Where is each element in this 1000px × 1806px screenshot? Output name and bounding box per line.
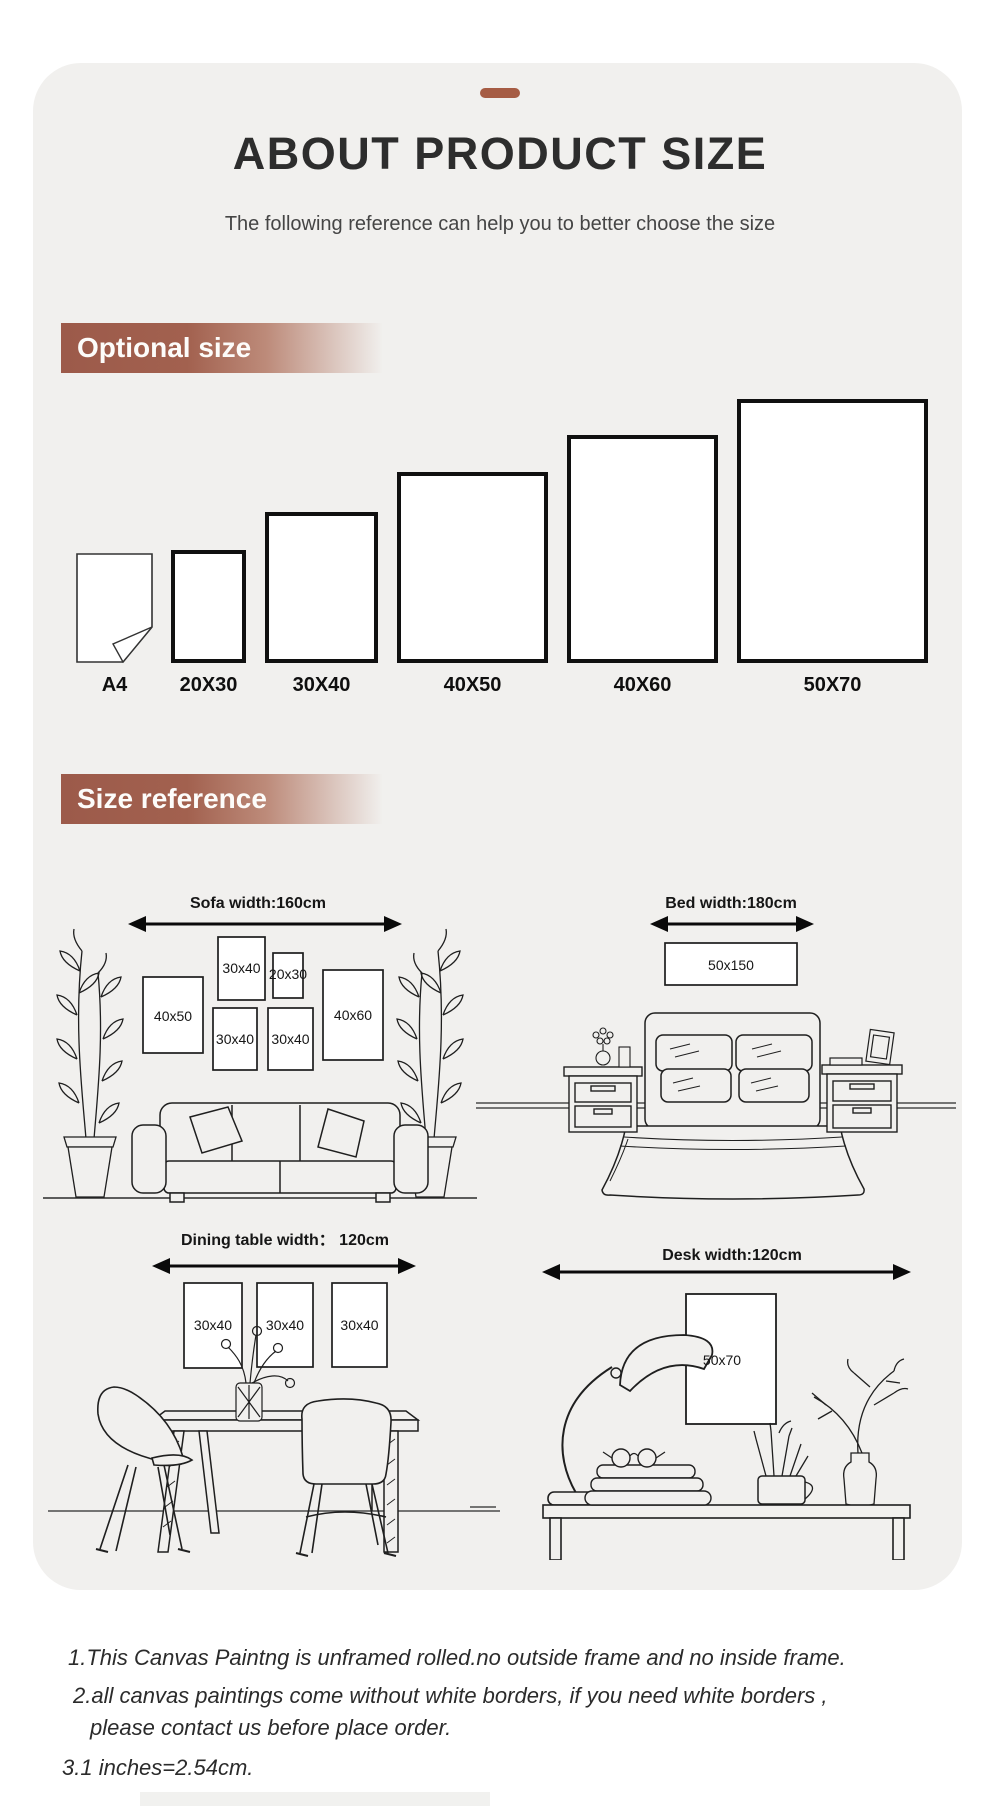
bed-illustration	[602, 1013, 864, 1199]
frame-label: 40x50	[154, 1008, 192, 1024]
sofa-scene-title: Sofa width:160cm	[190, 895, 326, 912]
product-size-infographic: ABOUT PRODUCT SIZE The following referen…	[0, 0, 1000, 1806]
desk-scene-title: Desk width:120cm	[662, 1247, 802, 1264]
frame-label: 40x60	[334, 1007, 372, 1023]
frame-label: 30x40	[222, 960, 260, 976]
vase-branches-illustration	[812, 1359, 908, 1506]
photo-frame-decor	[830, 1029, 894, 1065]
size-box-40x50	[397, 472, 548, 663]
desk-width-arrow	[542, 1264, 911, 1280]
size-box-40x60	[567, 435, 718, 663]
sofa-wall-frames	[143, 937, 383, 1070]
note-2-line1: 2.all canvas paintings come without whit…	[73, 1683, 828, 1709]
section-header-size-reference: Size reference	[61, 774, 393, 824]
size-label-50x70: 50X70	[737, 674, 928, 697]
accent-dash	[480, 88, 520, 98]
size-box-20x30	[171, 550, 246, 663]
note-3: 3.1 inches=2.54cm.	[62, 1755, 253, 1781]
bed-width-arrow	[650, 916, 814, 932]
page-subtitle: The following reference can help you to …	[0, 213, 1000, 236]
nightstand-right	[822, 1065, 902, 1132]
frame-label: 30x40	[194, 1317, 232, 1333]
size-label-30x40: 30X40	[265, 674, 378, 697]
dining-scene: Dining table width： 120cm 30x40 30x40 30…	[40, 1215, 510, 1560]
frame-label: 30x40	[271, 1031, 309, 1047]
nightstand-left	[564, 1067, 642, 1132]
note-2-line2: please contact us before place order.	[90, 1715, 451, 1741]
sofa-scene: Sofa width:160cm	[40, 885, 480, 1215]
frame-label: 50x150	[708, 957, 754, 973]
note-1: 1.This Canvas Paintng is unframed rolled…	[68, 1645, 846, 1671]
size-label-20x30: 20X30	[171, 674, 246, 697]
pencil-mug-illustration	[754, 1421, 813, 1504]
page-title: ABOUT PRODUCT SIZE	[0, 128, 1000, 180]
size-label-a4: A4	[76, 674, 153, 697]
dining-scene-title: Dining table width： 120cm	[181, 1232, 389, 1249]
desk-scene: Desk width:120cm 50x70	[470, 1215, 962, 1560]
frame-label: 30x40	[216, 1031, 254, 1047]
frame-label: 50x70	[703, 1352, 741, 1368]
frame-label: 30x40	[266, 1317, 304, 1333]
footer-shadow	[140, 1792, 490, 1806]
size-box-50x70	[737, 399, 928, 663]
chair-right-illustration	[296, 1399, 396, 1556]
desk-illustration	[543, 1505, 910, 1560]
sofa-illustration	[132, 1103, 428, 1202]
bed-scene-title: Bed width:180cm	[665, 895, 797, 912]
flowers-decor	[593, 1028, 630, 1067]
frame-label: 30x40	[340, 1317, 378, 1333]
plant-illustration	[57, 929, 123, 1197]
size-label-40x50: 40X50	[397, 674, 548, 697]
dining-width-arrow	[152, 1258, 416, 1274]
books-glasses-illustration	[585, 1449, 711, 1505]
size-box-a4	[76, 553, 153, 663]
size-label-40x60: 40X60	[567, 674, 718, 697]
bed-scene: Bed width:180cm	[470, 885, 962, 1215]
section-header-optional-size: Optional size	[61, 323, 393, 373]
size-box-30x40	[265, 512, 378, 663]
sofa-width-arrow	[128, 916, 402, 932]
frame-label: 20x30	[269, 966, 307, 982]
